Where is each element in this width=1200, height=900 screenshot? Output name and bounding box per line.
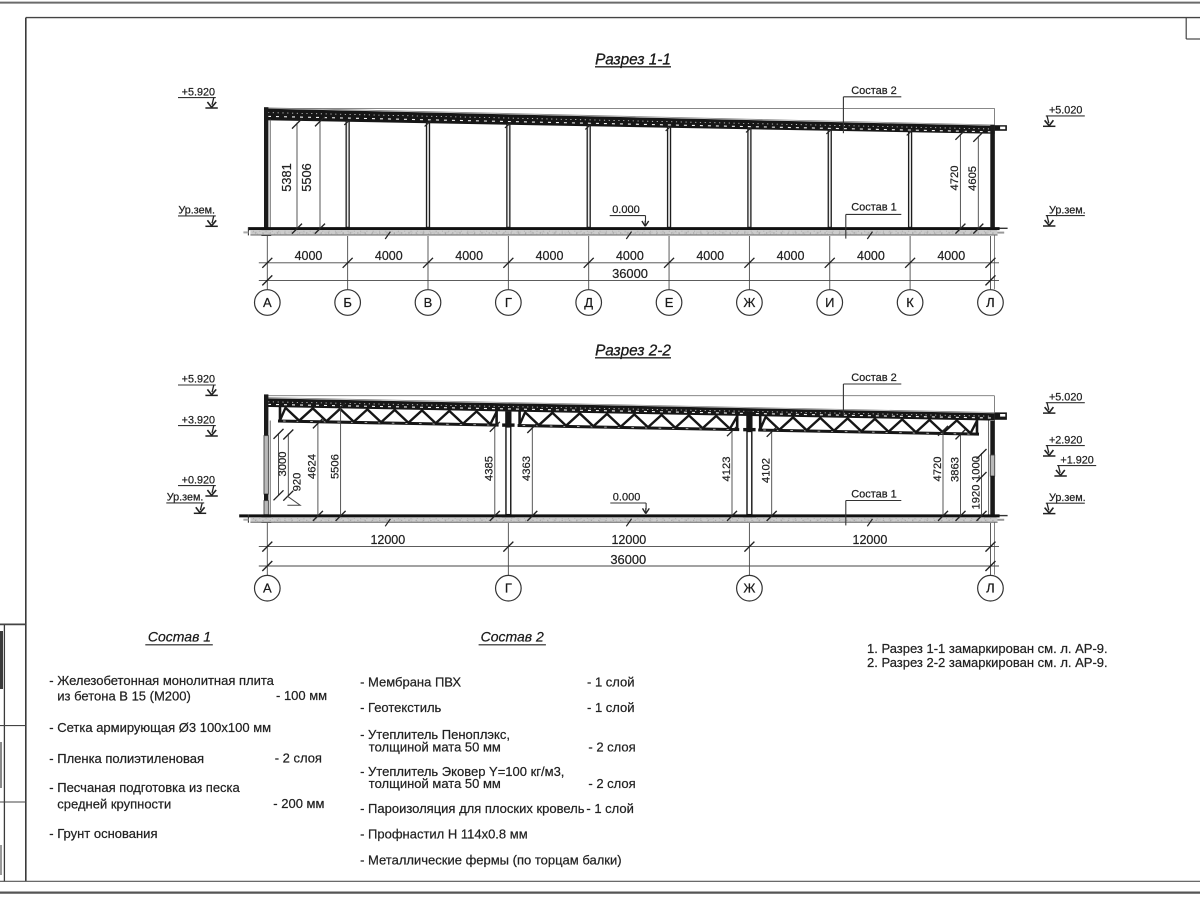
svg-text:- Металлические фермы (по торц: - Металлические фермы (по торцам балки)	[360, 853, 621, 868]
svg-text:+5.920: +5.920	[182, 374, 215, 386]
svg-text:- Пароизоляция для плоских кро: - Пароизоляция для плоских кровель	[360, 801, 585, 816]
svg-text:4000: 4000	[857, 249, 885, 263]
svg-text:Ур.зем.: Ур.зем.	[1049, 492, 1086, 504]
svg-text:толщиной мата 50 мм: толщиной мата 50 мм	[369, 740, 501, 755]
svg-text:4102: 4102	[761, 458, 773, 483]
svg-text:И: И	[825, 295, 834, 310]
svg-text:А: А	[263, 295, 272, 310]
svg-text:4363: 4363	[521, 456, 533, 481]
svg-text:- 2 слоя: - 2 слоя	[588, 776, 635, 791]
svg-text:Л: Л	[986, 581, 995, 596]
svg-text:12000: 12000	[853, 533, 888, 547]
svg-text:Д: Д	[584, 295, 593, 310]
svg-text:4720: 4720	[932, 457, 944, 482]
svg-text:Г: Г	[505, 295, 512, 310]
svg-text:Л: Л	[986, 295, 995, 310]
svg-text:3863: 3863	[949, 457, 961, 482]
svg-text:4624: 4624	[307, 454, 319, 479]
svg-text:- Грунт основания: - Грунт основания	[49, 826, 157, 841]
svg-text:- Профнастил Н 114х0.8 мм: - Профнастил Н 114х0.8 мм	[360, 827, 528, 842]
svg-text:4000: 4000	[777, 249, 805, 263]
svg-text:+1.920: +1.920	[1060, 454, 1093, 466]
svg-text:- Пленка полиэтиленовая: - Пленка полиэтиленовая	[49, 751, 204, 766]
svg-text:5506: 5506	[329, 454, 341, 479]
svg-text:+5.920: +5.920	[182, 86, 215, 98]
svg-text:Ж: Ж	[743, 295, 755, 310]
svg-text:36000: 36000	[612, 266, 648, 281]
svg-text:1000: 1000	[970, 456, 982, 481]
svg-text:3000: 3000	[277, 452, 289, 477]
svg-text:4000: 4000	[295, 249, 323, 263]
svg-text:+3.920: +3.920	[182, 414, 215, 426]
svg-text:Ур.зем.: Ур.зем.	[1049, 204, 1086, 216]
svg-text:толщиной мата 50 мм: толщиной мата 50 мм	[369, 776, 501, 791]
svg-text:+5.020: +5.020	[1049, 105, 1082, 117]
svg-text:12000: 12000	[611, 533, 646, 547]
svg-text:- Мембрана ПВХ: - Мембрана ПВХ	[360, 675, 461, 690]
svg-text:Ур.зем.: Ур.зем.	[178, 205, 215, 217]
svg-text:- Железобетонная монолитная п: - Железобетонная монолитная плита	[49, 673, 274, 688]
svg-text:- 1 слой: - 1 слой	[587, 675, 635, 690]
svg-text:920: 920	[291, 473, 303, 492]
svg-text:5506: 5506	[299, 163, 314, 191]
svg-text:4385: 4385	[484, 456, 496, 481]
svg-text:Состав 2: Состав 2	[851, 372, 897, 384]
svg-text:- Песчаная подготовка из песка: - Песчаная подготовка из песка	[49, 780, 240, 795]
svg-text:Разрез 2-2: Разрез 2-2	[595, 343, 671, 360]
svg-text:4720: 4720	[949, 166, 961, 191]
svg-text:1920: 1920	[970, 485, 982, 510]
svg-text:0.000: 0.000	[612, 204, 640, 216]
svg-text:Состав 1: Состав 1	[148, 629, 211, 645]
svg-text:4000: 4000	[616, 249, 644, 263]
svg-text:Состав 2: Состав 2	[481, 629, 544, 645]
svg-text:12000: 12000	[370, 533, 405, 547]
svg-text:4000: 4000	[536, 249, 564, 263]
svg-text:из бетона В 15 (М200): из бетона В 15 (М200)	[57, 689, 191, 704]
svg-text:А: А	[263, 581, 272, 596]
svg-text:Состав 1: Состав 1	[851, 201, 897, 213]
svg-text:Состав 1: Состав 1	[851, 489, 897, 501]
svg-text:Состав 2: Состав 2	[851, 85, 897, 97]
svg-text:+5.020: +5.020	[1049, 391, 1082, 403]
svg-text:средней крупности: средней крупности	[57, 796, 171, 811]
svg-text:К: К	[906, 295, 914, 310]
svg-text:4123: 4123	[721, 457, 733, 482]
svg-text:Б: Б	[343, 295, 352, 310]
svg-text:0.000: 0.000	[613, 492, 641, 504]
svg-text:4000: 4000	[937, 249, 965, 263]
svg-text:- Геотекстиль: - Геотекстиль	[360, 700, 441, 715]
svg-text:1. Разрез 1-1 замаркирован см.: 1. Разрез 1-1 замаркирован см. л. АР-9.	[867, 641, 1108, 656]
svg-text:+2.920: +2.920	[1049, 434, 1082, 446]
svg-text:Ур.зем.: Ур.зем.	[167, 492, 204, 504]
svg-text:Г: Г	[505, 581, 512, 596]
svg-text:- 200 мм: - 200 мм	[273, 796, 324, 811]
svg-text:- 1 слой: - 1 слой	[586, 801, 634, 816]
svg-text:4605: 4605	[967, 166, 979, 191]
svg-text:- Сетка армирующая Ø3 100х100: - Сетка армирующая Ø3 100х100 мм	[49, 720, 271, 735]
svg-text:Е: Е	[665, 295, 674, 310]
svg-text:36000: 36000	[610, 552, 646, 567]
svg-text:Разрез 1-1: Разрез 1-1	[595, 52, 671, 69]
svg-text:4000: 4000	[696, 249, 724, 263]
svg-text:+0.920: +0.920	[182, 474, 215, 486]
svg-text:2. Разрез 2-2 замаркирован см.: 2. Разрез 2-2 замаркирован см. л. АР-9.	[867, 655, 1108, 670]
svg-text:4000: 4000	[375, 249, 403, 263]
svg-text:5381: 5381	[279, 163, 294, 191]
svg-text:4000: 4000	[455, 249, 483, 263]
svg-text:В: В	[424, 295, 433, 310]
svg-text:- 100 мм: - 100 мм	[276, 688, 327, 703]
svg-text:- 2 слоя: - 2 слоя	[588, 740, 635, 755]
svg-text:- 1 слой: - 1 слой	[587, 700, 635, 715]
svg-text:- 2 слоя: - 2 слоя	[275, 751, 322, 766]
svg-text:Ж: Ж	[743, 581, 755, 596]
